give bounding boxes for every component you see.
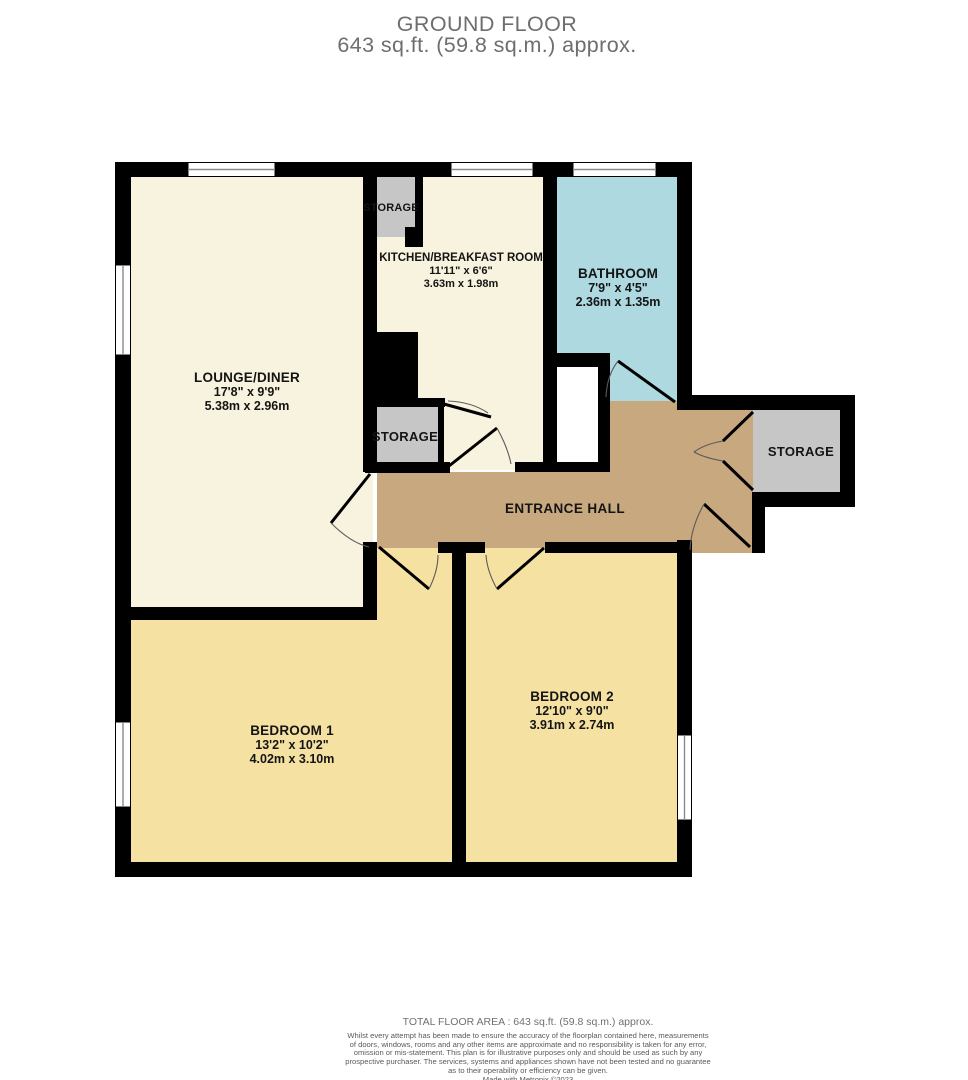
floorplan-drawing: LOUNGE/DINER 17'8" x 9'9" 5.38m x 2.96m … <box>0 0 968 1080</box>
wall-segment <box>438 542 485 553</box>
kitchen-imperial-label: 11'11" x 6'6" <box>429 265 492 277</box>
wall-segment <box>752 492 765 553</box>
wall-segment <box>840 395 855 507</box>
window <box>188 163 275 177</box>
total-floor-area: TOTAL FLOOR AREA : 643 sq.ft. (59.8 sq.m… <box>345 1016 710 1028</box>
lounge-imperial-label: 17'8" x 9'9" <box>214 385 281 399</box>
wall-segment <box>545 542 680 553</box>
bedroom2-name-label: BEDROOM 2 <box>530 689 614 704</box>
lounge-name-label: LOUNGE/DINER <box>194 370 300 385</box>
bathroom-metric-label: 2.36m x 1.35m <box>576 295 661 309</box>
bedroom1-name-label: BEDROOM 1 <box>250 723 334 738</box>
wall-segment <box>365 398 445 407</box>
wall-segment <box>543 162 557 472</box>
wall-segment <box>452 552 466 862</box>
entrance-hall-label: ENTRANCE HALL <box>505 501 625 516</box>
wall-segment <box>677 162 692 410</box>
floorplan-page: GROUND FLOOR 643 sq.ft. (59.8 sq.m.) app… <box>0 0 968 1080</box>
bathroom-imperial-label: 7'9" x 4'5" <box>588 281 648 295</box>
wall-segment <box>438 398 444 472</box>
lounge-metric-label: 5.38m x 2.96m <box>205 399 290 413</box>
kitchen-name-label: KITCHEN/BREAKFAST ROOM <box>379 252 543 264</box>
wall-segment <box>365 462 450 473</box>
wall-segment <box>598 353 610 472</box>
kitchen-metric-label: 3.63m x 1.98m <box>424 278 499 290</box>
footer: TOTAL FLOOR AREA : 643 sq.ft. (59.8 sq.m… <box>345 1016 710 1080</box>
storage-right-label: STORAGE <box>768 444 834 459</box>
wall-segment <box>677 395 855 410</box>
chimney-block <box>375 332 418 398</box>
window <box>451 163 533 177</box>
window <box>116 722 131 807</box>
credit-line: Made with Metropix ©2023 <box>345 1076 710 1080</box>
wall-segment <box>115 607 377 620</box>
bedroom1-metric-label: 4.02m x 3.10m <box>250 752 335 766</box>
wall-segment <box>515 462 610 472</box>
storage-hall-label: STORAGE <box>372 429 438 444</box>
wall-segment <box>752 492 855 507</box>
wall-segment <box>405 227 423 247</box>
bedroom2-imperial-label: 12'10" x 9'0" <box>535 704 608 718</box>
wall-segment <box>115 862 692 877</box>
window <box>116 265 131 355</box>
storage-kitchen-label: STORAGE <box>363 202 419 214</box>
bedroom2-metric-label: 3.91m x 2.74m <box>530 718 615 732</box>
window <box>678 735 692 820</box>
bedroom1-imperial-label: 13'2" x 10'2" <box>255 738 328 752</box>
bathroom-name-label: BATHROOM <box>578 266 658 281</box>
window <box>573 163 656 177</box>
wall-segment <box>677 540 692 877</box>
